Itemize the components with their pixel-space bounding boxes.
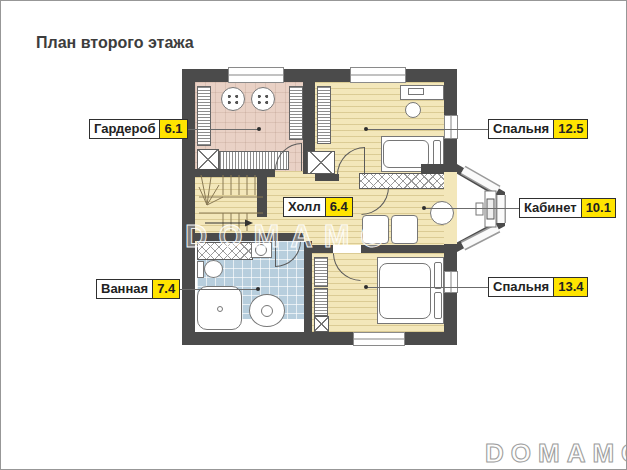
room-label-wardrobe: Гардероб 6.1 — [89, 119, 188, 139]
room-name: Ванная — [96, 279, 153, 299]
vent-shaft — [307, 151, 335, 174]
watermark-footer-logo: DOMAMO — [485, 438, 627, 469]
watermark-center: DOMAMO — [185, 219, 396, 255]
room-label-office: Кабинет 10.1 — [519, 198, 616, 218]
shower-drain — [217, 306, 223, 312]
closet-rack — [314, 288, 328, 316]
window-right-1 — [444, 115, 458, 139]
room-area-badge: 12.5 — [554, 119, 588, 139]
room-label-hall: Холл 6.4 — [283, 197, 353, 217]
room-area-badge: 10.1 — [582, 198, 616, 218]
closet-rack — [289, 86, 303, 140]
pillow — [434, 262, 442, 289]
page-title: План второго этажа — [36, 34, 194, 52]
window-top-2 — [350, 67, 406, 83]
door-leaf — [301, 143, 302, 171]
closet-rack — [314, 257, 328, 287]
room-area-badge: 6.4 — [326, 197, 353, 217]
room-name: Гардероб — [89, 119, 160, 139]
pouf — [251, 87, 275, 111]
leader-dot — [256, 287, 260, 291]
floor-plan-page: План второго этажа — [0, 0, 627, 470]
toilet-bowl — [204, 260, 223, 278]
window-right-2 — [444, 271, 458, 293]
vent-shaft — [314, 316, 329, 332]
leader-line — [168, 289, 257, 290]
door-leaf — [364, 147, 365, 175]
leader-dot — [364, 285, 368, 289]
sink-pedestal — [261, 305, 273, 317]
room-name: Спальня — [488, 277, 554, 297]
chair — [405, 102, 421, 118]
room-label-bedroom-1: Спальня 12.5 — [488, 119, 588, 139]
room-name: Холл — [283, 197, 326, 217]
pouf — [221, 87, 245, 111]
wall-right-lower — [444, 252, 457, 345]
room-label-bathroom: Ванная 7.4 — [96, 279, 180, 299]
leader-line — [425, 208, 519, 209]
room-name: Спальня — [488, 119, 554, 139]
toilet-tank — [197, 261, 204, 278]
room-area-badge: 13.4 — [554, 277, 588, 297]
monitor — [408, 88, 424, 95]
wall-bedroom1-bottom — [315, 174, 339, 181]
room-area-badge: 7.4 — [153, 279, 180, 299]
closet-rack — [197, 86, 211, 146]
room-label-bedroom-2: Спальня 13.4 — [488, 277, 588, 297]
window-top-1 — [228, 67, 284, 83]
room-name: Кабинет — [519, 198, 582, 218]
leader-dot — [364, 127, 368, 131]
leader-dot — [422, 206, 426, 210]
office-chair — [430, 201, 454, 225]
leader-dot — [257, 127, 261, 131]
wall-left — [182, 69, 195, 345]
wall-top — [182, 69, 457, 82]
pillow — [434, 292, 442, 319]
room-area-badge: 6.1 — [160, 119, 187, 139]
leader-line — [366, 287, 488, 288]
vent-shaft — [197, 149, 219, 170]
window-bottom — [353, 332, 405, 346]
closet-rack — [317, 86, 331, 144]
wall-bottom — [182, 332, 457, 345]
blanket — [379, 263, 431, 319]
leader-line — [366, 129, 488, 130]
